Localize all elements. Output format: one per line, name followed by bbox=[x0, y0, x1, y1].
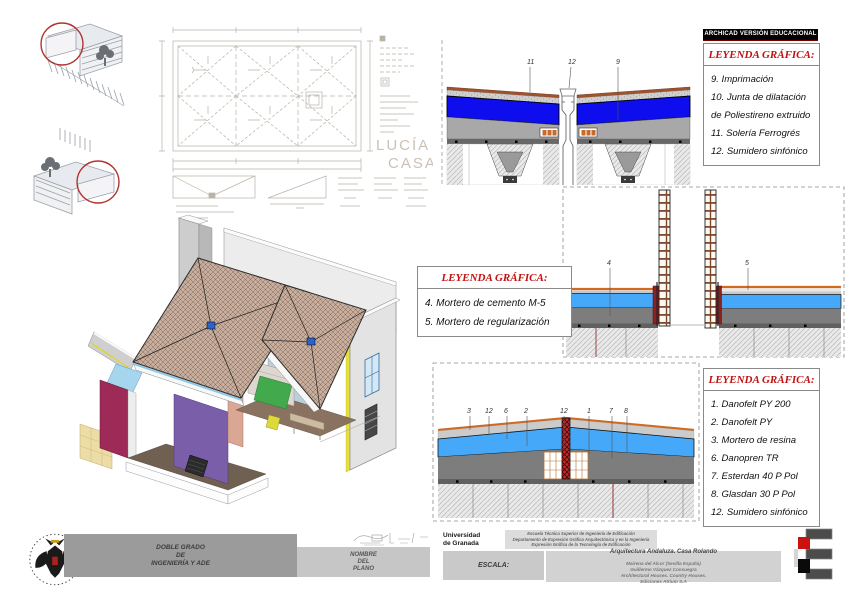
etsie-logo-icon bbox=[794, 527, 834, 584]
svg-text:6: 6 bbox=[504, 408, 508, 415]
svg-text:2: 2 bbox=[523, 408, 528, 415]
legend-item: 10. Junta de dilatación bbox=[711, 89, 812, 107]
legend-top-right: LEYENDA GRÁFICA: 9. Imprimación 10. Junt… bbox=[703, 43, 820, 166]
legend-title: LEYENDA GRÁFICA: bbox=[418, 267, 571, 289]
svg-text:CASADO: CASADO bbox=[388, 155, 433, 172]
legend-item: 7. Esterdan 40 P Pol bbox=[711, 468, 812, 486]
main-axonometric-cutaway bbox=[78, 212, 423, 527]
legend-bottom-right: LEYENDA GRÁFICA: 1. Danofelt PY 200 2. D… bbox=[703, 368, 820, 527]
svg-text:8: 8 bbox=[624, 408, 628, 415]
plan-name-box: NOMBRE DEL PLANO bbox=[297, 547, 430, 577]
svg-text:11: 11 bbox=[527, 59, 534, 66]
project-details: Mairena del Alcor (Sevilla España) Guill… bbox=[621, 561, 707, 584]
legend-item: 8. Glasdan 30 P Pol bbox=[711, 486, 812, 504]
university-name: Universidad de Granada bbox=[443, 531, 501, 548]
svg-text:3: 3 bbox=[467, 408, 471, 415]
legend-item: 4. Mortero de cemento M-5 bbox=[425, 294, 564, 313]
scale-label: ESCALA: bbox=[443, 551, 544, 580]
legend-title: LEYENDA GRÁFICA: bbox=[704, 369, 819, 391]
legend-title: LEYENDA GRÁFICA: bbox=[704, 44, 819, 66]
sketch-signature: LUCÍA CASADO bbox=[376, 137, 433, 172]
legend-item: 12. Sumidero sinfónico bbox=[711, 143, 812, 161]
svg-text:4: 4 bbox=[607, 260, 611, 267]
detail-section-bottom: 3 12 6 2 12 1 7 8 bbox=[432, 362, 700, 522]
legend-item: 11. Solería Ferrogrés bbox=[711, 125, 812, 143]
siphonic-drain bbox=[560, 89, 576, 185]
svg-text:7: 7 bbox=[609, 408, 614, 415]
degree-title: DOBLE GRADO DE INGENIERÍA Y ADE bbox=[64, 534, 297, 577]
department-names: Escuela Técnica Superior de Ingeniería d… bbox=[505, 530, 657, 549]
svg-text:12: 12 bbox=[560, 408, 568, 415]
detail-section-top: 11 12 9 bbox=[437, 40, 700, 185]
crimson-wall bbox=[100, 380, 128, 458]
svg-text:LUCÍA: LUCÍA bbox=[376, 137, 430, 154]
legend-item: 2. Danofelt PY bbox=[711, 414, 812, 432]
legend-item: 9. Imprimación bbox=[711, 71, 812, 89]
detail-section-middle: 4 5 bbox=[562, 186, 845, 358]
legend-item: 1. Danofelt PY 200 bbox=[711, 396, 812, 414]
legend-middle: LEYENDA GRÁFICA: 4. Mortero de cemento M… bbox=[417, 266, 572, 337]
svg-text:9: 9 bbox=[616, 59, 620, 66]
roof-slab-right bbox=[577, 87, 690, 185]
legend-item: 3. Mortero de resina bbox=[711, 432, 812, 450]
svg-text:5: 5 bbox=[745, 260, 749, 267]
floor-left bbox=[566, 289, 658, 357]
thumbnail-axonometric-1 bbox=[18, 14, 138, 118]
archicad-banner: ARCHICAD VERSIÓN EDUCACIONAL bbox=[703, 29, 818, 41]
roof-drain-icon bbox=[207, 322, 215, 329]
legend-item: de Poliestireno extruido bbox=[711, 107, 812, 125]
svg-text:12: 12 bbox=[568, 59, 576, 66]
floor-right bbox=[719, 287, 841, 357]
legend-item: 5. Mortero de regularización bbox=[425, 313, 564, 332]
boundary-wall bbox=[88, 332, 136, 372]
masonry-walls bbox=[653, 190, 722, 328]
project-title: Arquitectura Andaluza. Casa Rolando bbox=[610, 549, 717, 555]
roof-drain-icon bbox=[307, 338, 315, 345]
svg-text:1: 1 bbox=[587, 408, 591, 415]
hand-sketch-roof-plan: LUCÍA CASADO bbox=[148, 8, 433, 220]
drawing-sheet: LUCÍA CASADO bbox=[0, 0, 848, 600]
roof-slab-left bbox=[447, 87, 559, 185]
legend-item: 12. Sumidero sinfónico bbox=[711, 504, 812, 522]
legend-item: 6. Danopren TR bbox=[711, 450, 812, 468]
architect-sketch-logo bbox=[350, 527, 435, 549]
project-info: Arquitectura Andaluza. Casa Rolando Mair… bbox=[546, 551, 781, 582]
svg-text:12: 12 bbox=[485, 408, 493, 415]
